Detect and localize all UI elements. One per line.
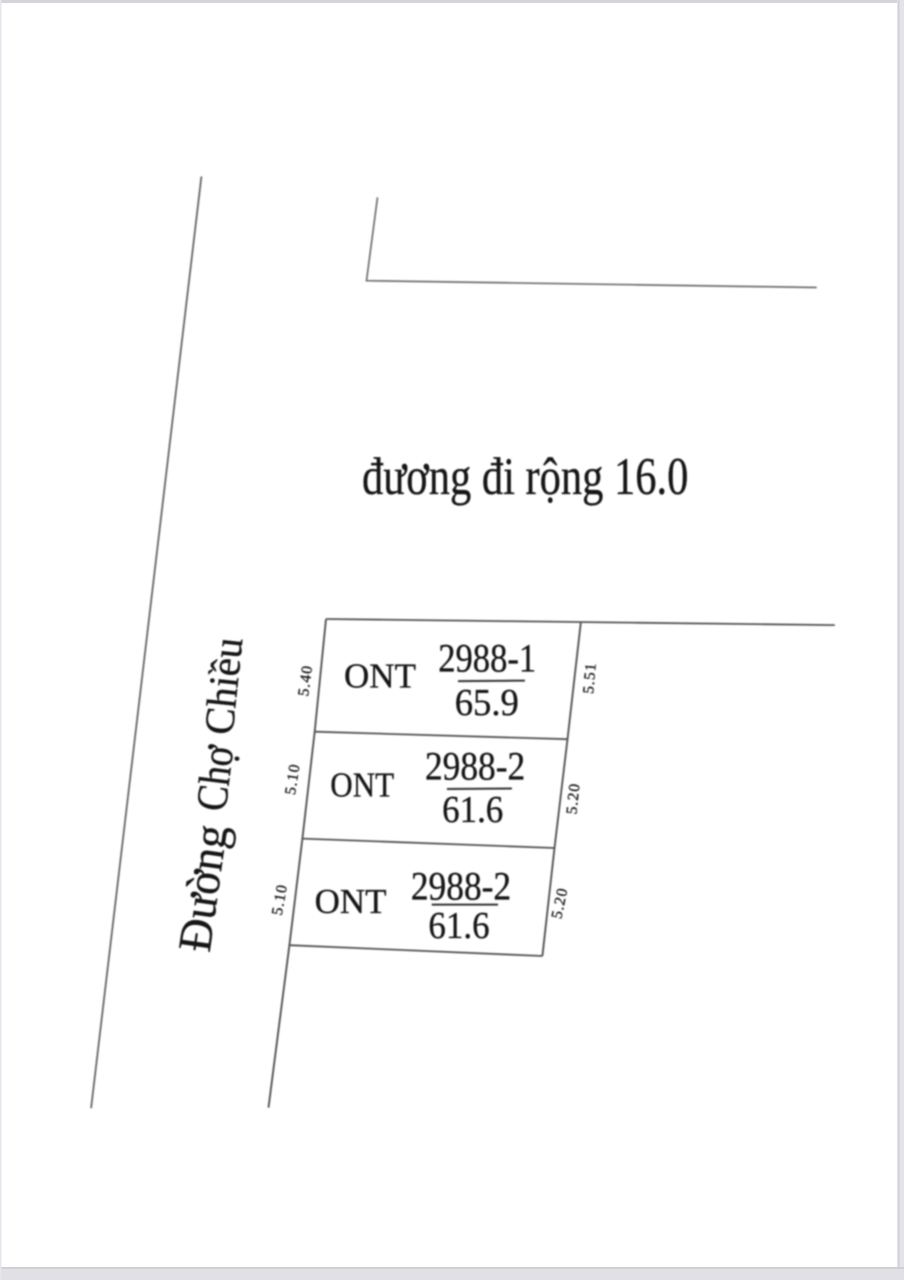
svg-text:đương đi rộng 16.0: đương đi rộng 16.0 bbox=[362, 448, 688, 506]
svg-text:65.9: 65.9 bbox=[455, 682, 519, 724]
svg-text:2988-2: 2988-2 bbox=[411, 865, 511, 909]
svg-text:5.51: 5.51 bbox=[580, 662, 600, 695]
svg-text:2988-1: 2988-1 bbox=[438, 637, 536, 681]
svg-text:ONT: ONT bbox=[315, 882, 387, 921]
svg-text:2988-2: 2988-2 bbox=[425, 745, 525, 789]
svg-text:61.6: 61.6 bbox=[442, 788, 503, 831]
svg-text:Chợ: Chợ bbox=[186, 741, 243, 813]
svg-text:5.20: 5.20 bbox=[563, 782, 583, 815]
svg-text:ONT: ONT bbox=[344, 657, 416, 696]
svg-text:ONT: ONT bbox=[330, 767, 394, 805]
svg-text:61.6: 61.6 bbox=[428, 904, 489, 947]
